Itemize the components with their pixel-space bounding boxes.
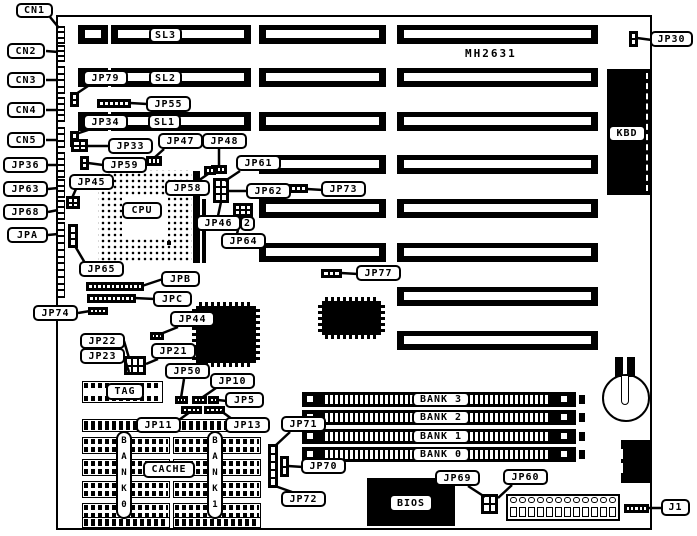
pad <box>58 237 64 242</box>
simm-right-clip <box>560 450 568 458</box>
callout-jp79: JP79 <box>83 70 128 86</box>
pad <box>83 164 86 167</box>
jpb-header <box>86 282 144 291</box>
j1-jumper <box>624 504 649 513</box>
pad <box>99 297 102 300</box>
pad <box>302 187 305 190</box>
chipset-qfp-pins <box>256 309 260 360</box>
io-qfp-pins <box>381 304 385 332</box>
simm-end-tab <box>579 395 585 404</box>
callout-jp21: JP21 <box>151 343 196 359</box>
pad <box>222 195 226 200</box>
pad <box>160 335 161 337</box>
pad <box>74 142 79 145</box>
pad <box>126 297 129 300</box>
pad <box>58 187 64 191</box>
pad <box>241 211 244 214</box>
jpa-header <box>57 222 65 298</box>
pad <box>58 172 64 176</box>
pad <box>105 102 108 105</box>
expansion-slot-segment <box>259 199 386 218</box>
pad <box>635 507 637 510</box>
pad <box>103 310 105 312</box>
callout-jp48: JP48 <box>202 133 247 149</box>
pad <box>271 479 275 485</box>
connector-pin <box>537 507 544 517</box>
cache-bank-label: B A N K 1 <box>207 431 223 519</box>
callout-jp11: JP11 <box>136 417 181 433</box>
pad <box>58 99 64 103</box>
callout-jp62: JP62 <box>246 183 291 199</box>
expansion-slot-segment <box>397 287 598 306</box>
io-qfp-pins <box>325 297 378 301</box>
pad <box>58 28 64 31</box>
pad <box>58 208 64 212</box>
cache-chip <box>220 459 261 476</box>
callout-sl2: SL2 <box>149 70 182 86</box>
pad <box>202 399 204 401</box>
simm-bank-label: BANK 2 <box>412 410 470 425</box>
slot-key <box>266 248 379 256</box>
pad <box>133 367 137 373</box>
connector-pin <box>555 497 562 503</box>
simm-end-tab <box>579 432 585 441</box>
jp63-jumper <box>57 179 65 198</box>
expansion-slot-segment <box>259 243 386 262</box>
pad <box>107 285 110 288</box>
pad <box>71 227 75 232</box>
pad <box>83 159 86 162</box>
slot-key <box>266 73 379 81</box>
pad <box>184 409 186 411</box>
battery-lead <box>615 357 623 377</box>
callout-jp44: JP44 <box>170 311 215 327</box>
pad <box>100 102 103 105</box>
pad <box>241 206 244 209</box>
pad <box>220 409 222 411</box>
connector-pin <box>582 497 589 503</box>
pad <box>216 181 220 186</box>
cache-chip <box>129 481 170 498</box>
cache-chip <box>220 437 261 454</box>
pad <box>73 95 76 99</box>
pad <box>640 507 642 510</box>
pad <box>127 359 131 365</box>
slot-key <box>404 117 591 125</box>
slot-key <box>266 117 379 125</box>
jp73-jumper <box>289 184 308 193</box>
connector-pin <box>600 507 607 517</box>
pad <box>216 188 220 193</box>
pad <box>156 335 157 337</box>
cache-bank-label: B A N K 0 <box>116 431 132 519</box>
pad <box>58 135 64 139</box>
pad <box>58 57 64 60</box>
pad <box>491 505 496 511</box>
connector-pin <box>609 497 616 503</box>
pad <box>74 204 77 207</box>
pad <box>71 234 75 239</box>
callout-jpa: JPA <box>7 227 48 243</box>
pad <box>271 463 275 469</box>
keyboard-connector-notch <box>615 463 623 473</box>
pad <box>491 497 496 503</box>
pad <box>149 159 151 163</box>
jp36-jumper <box>57 152 65 178</box>
callout-jp5: JP5 <box>225 392 264 408</box>
connector-pin <box>573 507 580 517</box>
connector-pin <box>600 497 607 503</box>
pad <box>58 33 64 36</box>
pad <box>58 129 64 133</box>
callout-jpc: JPC <box>153 291 192 307</box>
cache-chip <box>220 481 261 498</box>
expansion-slot-segment <box>397 68 598 87</box>
simm-bank-label: BANK 1 <box>412 429 470 444</box>
pad <box>98 285 101 288</box>
pad <box>58 244 64 249</box>
slot-key <box>404 30 591 38</box>
pad <box>121 285 124 288</box>
pad <box>58 39 64 42</box>
jp30-jumper <box>629 31 638 47</box>
pad <box>90 297 93 300</box>
pad <box>297 187 300 190</box>
pad <box>58 68 64 73</box>
pad <box>283 468 286 475</box>
io-qfp-pins <box>325 335 378 339</box>
connector-pin <box>546 497 553 503</box>
pad <box>58 192 64 196</box>
callout-jp46: JP46 <box>196 215 241 231</box>
pad <box>99 310 101 312</box>
pad <box>122 297 125 300</box>
board-marking: MH2631 <box>465 47 517 60</box>
pad <box>178 399 179 401</box>
simm-bank-label: BANK 3 <box>412 392 470 407</box>
pad <box>58 47 64 50</box>
expansion-slot-segment <box>111 112 251 131</box>
cn3-connector <box>57 66 65 94</box>
pad <box>133 359 137 365</box>
pad <box>74 199 77 202</box>
connector-pin <box>609 507 616 517</box>
connector-pin <box>528 497 535 503</box>
pad <box>112 285 115 288</box>
pad <box>73 101 76 105</box>
socket-side-bar <box>202 199 206 263</box>
jpc-header <box>87 294 136 303</box>
callout-jp65: JP65 <box>79 261 124 277</box>
expansion-slot-segment <box>397 112 598 131</box>
pad <box>157 159 159 163</box>
pad <box>644 507 646 510</box>
pad <box>216 195 220 200</box>
connector-pin <box>510 497 517 503</box>
pad <box>236 211 239 214</box>
expansion-slot-segment <box>259 25 386 44</box>
expansion-slot-segment <box>397 243 598 262</box>
jp69-jp60-jumper <box>481 494 498 514</box>
jp70-jumper <box>280 456 289 477</box>
jp50-jumper <box>175 396 188 404</box>
slot-key <box>404 204 591 212</box>
pad <box>69 199 72 202</box>
pad <box>127 367 131 373</box>
chipset-qfp-pins <box>199 302 253 306</box>
expansion-slot-segment <box>397 155 598 174</box>
pad <box>104 297 107 300</box>
cache-chip <box>129 437 170 454</box>
pad <box>58 278 64 283</box>
battery-stem <box>621 375 629 405</box>
callout-jp33: JP33 <box>108 138 153 154</box>
callout-jp55: JP55 <box>146 96 191 112</box>
jp47-jumper <box>146 156 162 166</box>
pad <box>58 105 64 109</box>
pad <box>184 399 185 401</box>
jp21-jp22-jp23-block <box>124 356 146 375</box>
connector-pin <box>519 507 526 517</box>
expansion-slot-segment <box>397 199 598 218</box>
pad <box>131 297 134 300</box>
pad <box>181 399 182 401</box>
cn4-connector <box>57 97 65 122</box>
callout-jp58: JP58 <box>165 180 210 196</box>
pad <box>222 188 226 193</box>
pad <box>197 409 199 411</box>
jp59-jumper <box>80 156 89 170</box>
jp79-jumper <box>70 92 79 107</box>
pad <box>58 181 64 185</box>
callout-jp69: JP69 <box>435 470 480 486</box>
pad <box>292 187 295 190</box>
jp65-jumper <box>68 224 78 248</box>
pad <box>89 285 92 288</box>
motherboard-diagram: MH2631 B A N K 0B A N K 1BANK 3BANK 2BAN… <box>0 0 697 536</box>
pad <box>95 310 97 312</box>
pad <box>125 102 128 105</box>
slot-key <box>266 30 379 38</box>
pad <box>73 134 76 138</box>
cn1-connector <box>57 26 65 44</box>
callout-jp36: JP36 <box>3 157 48 173</box>
connector-pin <box>573 497 580 503</box>
pad <box>130 285 133 288</box>
slot-key <box>266 160 379 168</box>
pad <box>218 168 220 171</box>
slot-key <box>85 30 101 38</box>
jp33-jumper <box>71 139 88 152</box>
callout-bios: BIOS <box>389 494 433 512</box>
expansion-slot-segment <box>397 331 598 350</box>
pad <box>484 505 489 511</box>
pad <box>632 34 635 38</box>
callout-jp72: JP72 <box>281 491 326 507</box>
pad <box>58 271 64 276</box>
pad <box>153 335 154 337</box>
pad <box>58 88 64 93</box>
jp10-jumper <box>192 396 207 404</box>
pad <box>139 285 142 288</box>
pad <box>110 102 113 105</box>
jp45-jumper <box>66 196 80 209</box>
pad <box>199 399 201 401</box>
jp13-header <box>204 406 225 414</box>
slot-key <box>404 160 591 168</box>
pad <box>103 285 106 288</box>
pad <box>74 147 79 150</box>
pad <box>632 40 635 44</box>
pad <box>222 181 226 186</box>
callout-cn5: CN5 <box>7 132 45 148</box>
pad <box>58 224 64 229</box>
pad <box>58 258 64 263</box>
pad <box>58 214 64 218</box>
pad <box>283 459 286 466</box>
simm-right-clip <box>560 432 568 440</box>
pad <box>69 204 72 207</box>
pad <box>58 75 64 80</box>
pad <box>631 507 633 510</box>
pad <box>117 297 120 300</box>
simm-right-clip <box>560 413 568 421</box>
pad <box>115 102 118 105</box>
callout-jp47: JP47 <box>158 133 203 149</box>
pad <box>484 497 489 503</box>
jp5-jumper <box>208 396 219 404</box>
jp71-header <box>268 444 278 488</box>
pad <box>335 272 339 275</box>
jp77-jumper <box>321 269 342 278</box>
pad <box>188 409 190 411</box>
pad <box>81 142 86 145</box>
callout-jp73: JP73 <box>321 181 366 197</box>
pad <box>81 147 86 150</box>
pad <box>330 272 334 275</box>
callout-j1: J1 <box>661 499 690 516</box>
pad <box>207 169 209 172</box>
slot-key <box>118 117 244 125</box>
pad <box>58 231 64 236</box>
pad <box>58 52 64 55</box>
connector-pin <box>582 507 589 517</box>
io-qfp-body <box>322 301 381 335</box>
jp44-header <box>150 332 164 340</box>
callout-jp13: JP13 <box>225 417 270 433</box>
simm-left-clip <box>306 432 314 440</box>
callout-jp34: JP34 <box>83 114 128 130</box>
pad <box>193 409 195 411</box>
callout-jp70: JP70 <box>301 458 346 474</box>
callout-jp61: JP61 <box>236 155 281 171</box>
pad <box>58 264 64 269</box>
callout-pin2: 2 <box>240 216 255 231</box>
callout-kbd: KBD <box>608 125 646 142</box>
cn2-connector <box>57 45 65 62</box>
slot-key <box>404 73 591 81</box>
pad <box>116 285 119 288</box>
callout-jp63: JP63 <box>3 181 48 197</box>
callout-jp30: JP30 <box>650 31 693 47</box>
callout-jp77: JP77 <box>356 265 401 281</box>
pad <box>139 359 143 365</box>
callout-jp59: JP59 <box>102 157 147 173</box>
pad <box>58 166 64 170</box>
simm-left-clip <box>306 450 314 458</box>
callout-jp64: JP64 <box>221 233 266 249</box>
pad <box>195 399 197 401</box>
simm-end-tab <box>579 413 585 422</box>
pad <box>58 251 64 256</box>
connector-pin <box>528 507 535 517</box>
io-qfp <box>318 297 385 339</box>
pad <box>627 507 629 510</box>
simm-end-tab <box>579 450 585 459</box>
pad <box>211 169 213 172</box>
connector-pin <box>537 497 544 503</box>
kbd-dashed-line <box>646 73 648 191</box>
expansion-slot-segment <box>259 112 386 131</box>
callout-cn2: CN2 <box>7 43 45 59</box>
callout-tag: TAG <box>106 383 144 400</box>
callout-jp23: JP23 <box>80 348 125 364</box>
pad <box>211 409 213 411</box>
connector-pin <box>546 507 553 517</box>
simm-left-clip <box>306 395 314 403</box>
callout-cpu: CPU <box>122 202 162 219</box>
connector-pin <box>591 507 598 517</box>
pad <box>153 159 155 163</box>
pad <box>134 285 137 288</box>
slot-key <box>266 204 379 212</box>
callout-sl1: SL1 <box>148 114 181 130</box>
callout-jp74: JP74 <box>33 305 78 321</box>
pad <box>58 142 64 146</box>
pad <box>211 399 213 401</box>
callout-cache: CACHE <box>143 461 195 478</box>
simm-bank-label: BANK 0 <box>412 447 470 462</box>
callout-cn3: CN3 <box>7 72 45 88</box>
connector-pin <box>555 507 562 517</box>
pad <box>271 447 275 453</box>
pad <box>216 409 218 411</box>
expansion-slot-segment <box>78 25 108 44</box>
pad <box>139 367 143 373</box>
pad <box>236 206 239 209</box>
callout-cn1: CN1 <box>16 3 53 18</box>
pad <box>58 116 64 120</box>
expansion-slot-segment <box>397 25 598 44</box>
pad <box>58 154 64 158</box>
pad <box>58 285 64 290</box>
jp58-jumper <box>204 166 216 175</box>
callout-jp68: JP68 <box>3 204 48 220</box>
pad <box>120 102 123 105</box>
cpu-pin1-dot <box>167 241 171 245</box>
pad <box>271 455 275 461</box>
pad <box>91 310 93 312</box>
pad <box>247 206 250 209</box>
pad <box>95 297 98 300</box>
pad <box>113 297 116 300</box>
pad <box>58 81 64 86</box>
pad <box>71 240 75 245</box>
connector-pin <box>564 497 571 503</box>
pad <box>207 409 209 411</box>
pad <box>247 211 250 214</box>
callout-jp50: JP50 <box>165 363 210 379</box>
